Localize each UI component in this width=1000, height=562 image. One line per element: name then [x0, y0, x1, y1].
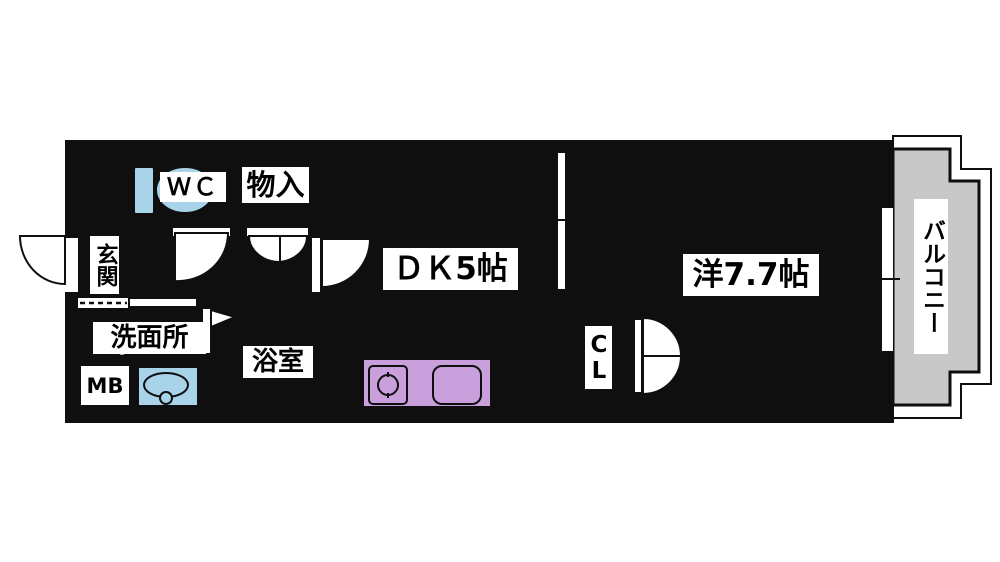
room-label-meter-box: MB	[82, 372, 128, 400]
bath-right-wall	[348, 296, 362, 408]
room-label-entrance: 玄関	[90, 236, 119, 294]
storage-doorway	[247, 228, 308, 236]
closet-top-wall	[557, 290, 643, 302]
closet-left-wall	[557, 290, 568, 412]
entry-doorway	[65, 236, 78, 294]
dk-partition-sliding-door	[557, 152, 566, 290]
room-label-storage: 物入	[242, 167, 309, 203]
wc-bottom-wall	[133, 228, 173, 236]
room-label-wc: ＷＣ	[160, 172, 226, 202]
wc-storage-wall	[230, 140, 242, 236]
room-label-bathroom: 浴室	[243, 346, 313, 378]
floor-plan: ＷＣ 物入 玄関 洗面所 MB 浴室 ＤＫ5帖 洋7.7帖 CL バルコニー	[0, 0, 1000, 562]
room-label-balcony: バルコニー	[914, 199, 948, 354]
storage-right-wall	[308, 140, 322, 236]
hall-door-jamb	[310, 236, 322, 294]
kitchen-counter	[362, 358, 492, 408]
room-label-closet: CL	[585, 326, 612, 389]
balcony-window	[881, 207, 894, 352]
closet-right-wall-bottom	[633, 394, 643, 408]
room-label-western-room: 洋7.7帖	[683, 254, 819, 296]
closet-right-wall-top	[633, 302, 643, 318]
alcove-wall	[78, 195, 113, 202]
closet-door-jamb	[633, 318, 643, 394]
room-label-dk: ＤＫ5帖	[383, 248, 518, 290]
washroom-doorway	[128, 297, 198, 308]
room-label-washroom: 洗面所	[93, 322, 206, 354]
door-swing-arc-icon-entry	[20, 236, 65, 284]
entry-column-wall	[112, 140, 133, 236]
wc-doorway	[173, 228, 230, 236]
entrance-step-band	[78, 298, 128, 308]
